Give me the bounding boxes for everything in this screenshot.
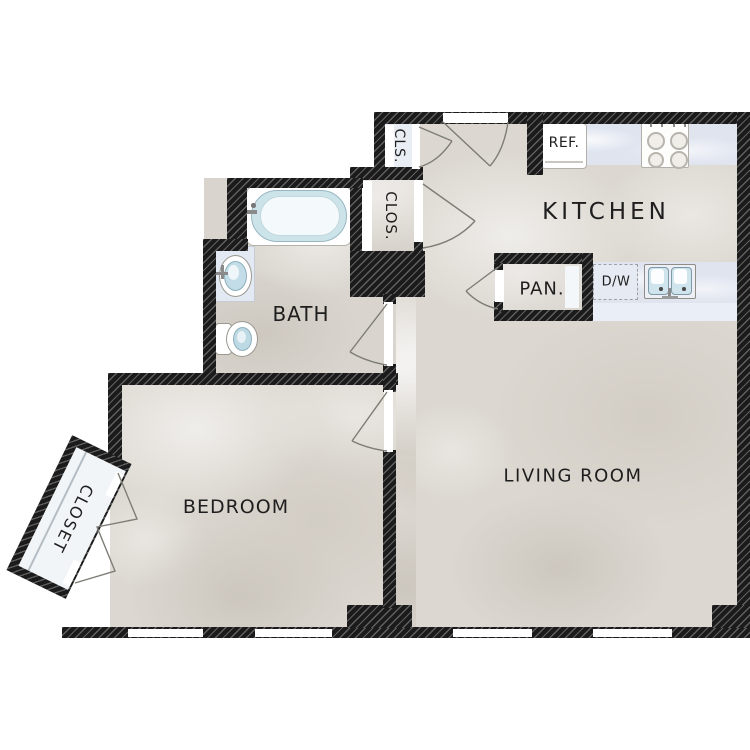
closet-jamb bbox=[62, 559, 81, 586]
wall-bath-bedroom bbox=[108, 373, 398, 385]
bedroom-label: BEDROOM bbox=[183, 496, 289, 518]
wall-bath-left bbox=[203, 239, 216, 385]
wall-small-closet-left bbox=[374, 112, 385, 172]
floor-plan: CLOSET KITCHEN LIVING ROOM BEDROOM BATH … bbox=[0, 0, 750, 750]
pantry-label: PAN. bbox=[519, 279, 564, 300]
living-room-label: LIVING ROOM bbox=[504, 466, 643, 487]
bedroom-door-opening bbox=[384, 390, 393, 452]
wall-right bbox=[737, 112, 750, 638]
wall-corridor-mid bbox=[383, 364, 396, 392]
entry-door-opening bbox=[443, 113, 508, 123]
bedroom-closet-label: CLOSET bbox=[48, 481, 98, 556]
window-bedroom-1 bbox=[128, 629, 203, 637]
bathtub-faucet bbox=[247, 210, 257, 214]
burner bbox=[647, 132, 665, 150]
hall-closet-label: CLOS. bbox=[382, 191, 400, 240]
vanity-faucet-handle bbox=[221, 265, 224, 279]
bath-door-opening bbox=[384, 302, 393, 366]
sink-drain bbox=[682, 287, 686, 291]
wall-hall-closet-bottom-block bbox=[350, 251, 425, 297]
window-living-2 bbox=[593, 629, 672, 637]
sink-highlight bbox=[674, 269, 687, 284]
kitchen-label: KITCHEN bbox=[542, 199, 670, 225]
wall-pantry-jamb-bottom bbox=[494, 301, 503, 312]
wall-pantry-bottom bbox=[494, 310, 593, 321]
wall-tub-top bbox=[227, 178, 363, 188]
bathtub-basin bbox=[260, 196, 340, 236]
wall-pantry-top bbox=[494, 253, 593, 264]
refrigerator-door-line bbox=[545, 161, 583, 163]
small-closet-label: CLS. bbox=[391, 129, 407, 164]
wall-bottom-pier-right bbox=[712, 605, 750, 628]
burner bbox=[670, 151, 688, 169]
pantry-shelf bbox=[565, 266, 579, 308]
bathroom-sink-highlight bbox=[228, 265, 239, 280]
wall-bedroom-living-divider bbox=[383, 450, 396, 608]
refrigerator-label: REF. bbox=[549, 135, 580, 151]
kitchen-counter-edge bbox=[591, 303, 738, 321]
wall-hall-closet-jamb bbox=[414, 241, 423, 252]
dishwasher-label: D/W bbox=[602, 275, 631, 290]
window-bedroom-2 bbox=[255, 629, 332, 637]
toilet-bowl-highlight bbox=[237, 331, 246, 343]
wall-bottom-pier-center bbox=[347, 605, 412, 628]
burner bbox=[670, 132, 688, 150]
hall-closet-opening bbox=[414, 180, 423, 242]
small-closet-opening bbox=[412, 124, 420, 169]
bathtub-faucet-knob bbox=[251, 203, 256, 208]
window-living-1 bbox=[453, 629, 532, 637]
hall-closet-shelf bbox=[361, 181, 372, 251]
wall-entry-stub bbox=[527, 112, 543, 175]
sink-drain bbox=[659, 287, 663, 291]
burner bbox=[648, 152, 664, 168]
sink-faucet-handle bbox=[662, 296, 678, 299]
sink-highlight bbox=[651, 269, 664, 284]
living-floor-left bbox=[396, 294, 416, 628]
wall-tub-left bbox=[227, 178, 247, 246]
wall-top bbox=[374, 112, 750, 124]
pantry-door-opening bbox=[495, 270, 504, 302]
bath-label: BATH bbox=[272, 302, 329, 326]
